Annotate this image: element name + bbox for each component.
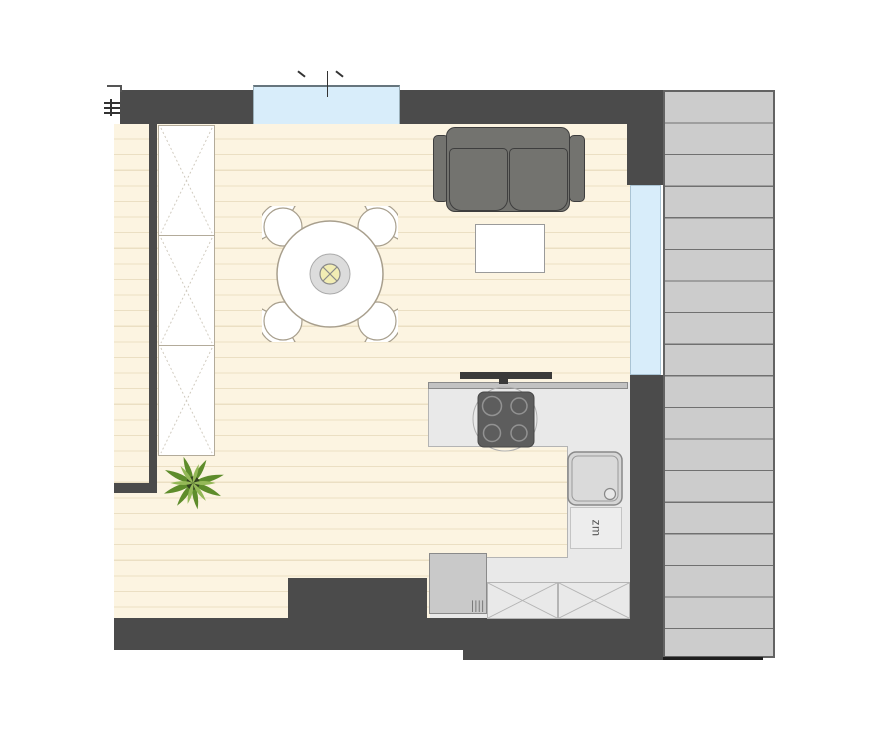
wall-bottom-right bbox=[463, 618, 663, 660]
terrace-edge-line bbox=[663, 657, 763, 660]
kitchen-counter-edge-left bbox=[428, 382, 429, 447]
axis-tick-left bbox=[297, 70, 305, 77]
cross-icon bbox=[159, 126, 214, 235]
wall-bracket-vertical bbox=[120, 85, 122, 92]
wall-top-left bbox=[120, 90, 253, 124]
dining-set-icon bbox=[262, 206, 398, 342]
sofa-seat-left bbox=[449, 148, 508, 211]
refrigerator bbox=[429, 553, 487, 614]
sink bbox=[566, 450, 626, 508]
sofa-seat-right bbox=[509, 148, 568, 211]
wall-right-corner bbox=[627, 124, 663, 185]
socket-symbol-tick bbox=[104, 107, 120, 109]
axis-tick-right bbox=[335, 70, 343, 77]
wall-bottom-left bbox=[114, 618, 463, 650]
wardrobe-section bbox=[159, 346, 214, 455]
wardrobe bbox=[158, 125, 215, 456]
cross-icon bbox=[559, 583, 629, 618]
wall-interior-stub bbox=[114, 483, 157, 493]
cross-icon bbox=[159, 236, 214, 345]
plant bbox=[157, 449, 229, 515]
refrigerator-hinge-icon bbox=[430, 554, 486, 613]
wall-interior-bottom bbox=[288, 578, 427, 618]
axis-mark-line bbox=[327, 71, 328, 97]
base-cabinet bbox=[558, 582, 630, 619]
wall-interior-left bbox=[149, 124, 157, 493]
sofa-armrest-right bbox=[569, 135, 585, 202]
terrace-decking bbox=[663, 90, 775, 658]
wardrobe-section bbox=[159, 126, 214, 236]
socket-symbol-tick bbox=[104, 112, 120, 114]
coffee-table bbox=[475, 224, 545, 273]
wardrobe-section bbox=[159, 236, 214, 346]
base-cabinet bbox=[487, 582, 558, 619]
cross-icon bbox=[159, 346, 214, 455]
dining-set bbox=[262, 206, 398, 342]
sink-icon bbox=[566, 450, 626, 508]
dishwasher-label: zm bbox=[589, 520, 603, 537]
wall-top-right bbox=[400, 90, 663, 124]
dishwasher-cell: zm bbox=[570, 507, 622, 549]
hob-icon bbox=[462, 384, 548, 454]
cross-icon bbox=[488, 583, 557, 618]
socket-symbol-tick bbox=[104, 102, 120, 104]
floor-plan: zm bbox=[0, 0, 882, 750]
hob bbox=[462, 384, 548, 454]
plant-icon bbox=[157, 449, 229, 515]
cooker-hood bbox=[460, 372, 552, 379]
window-right bbox=[630, 185, 661, 375]
